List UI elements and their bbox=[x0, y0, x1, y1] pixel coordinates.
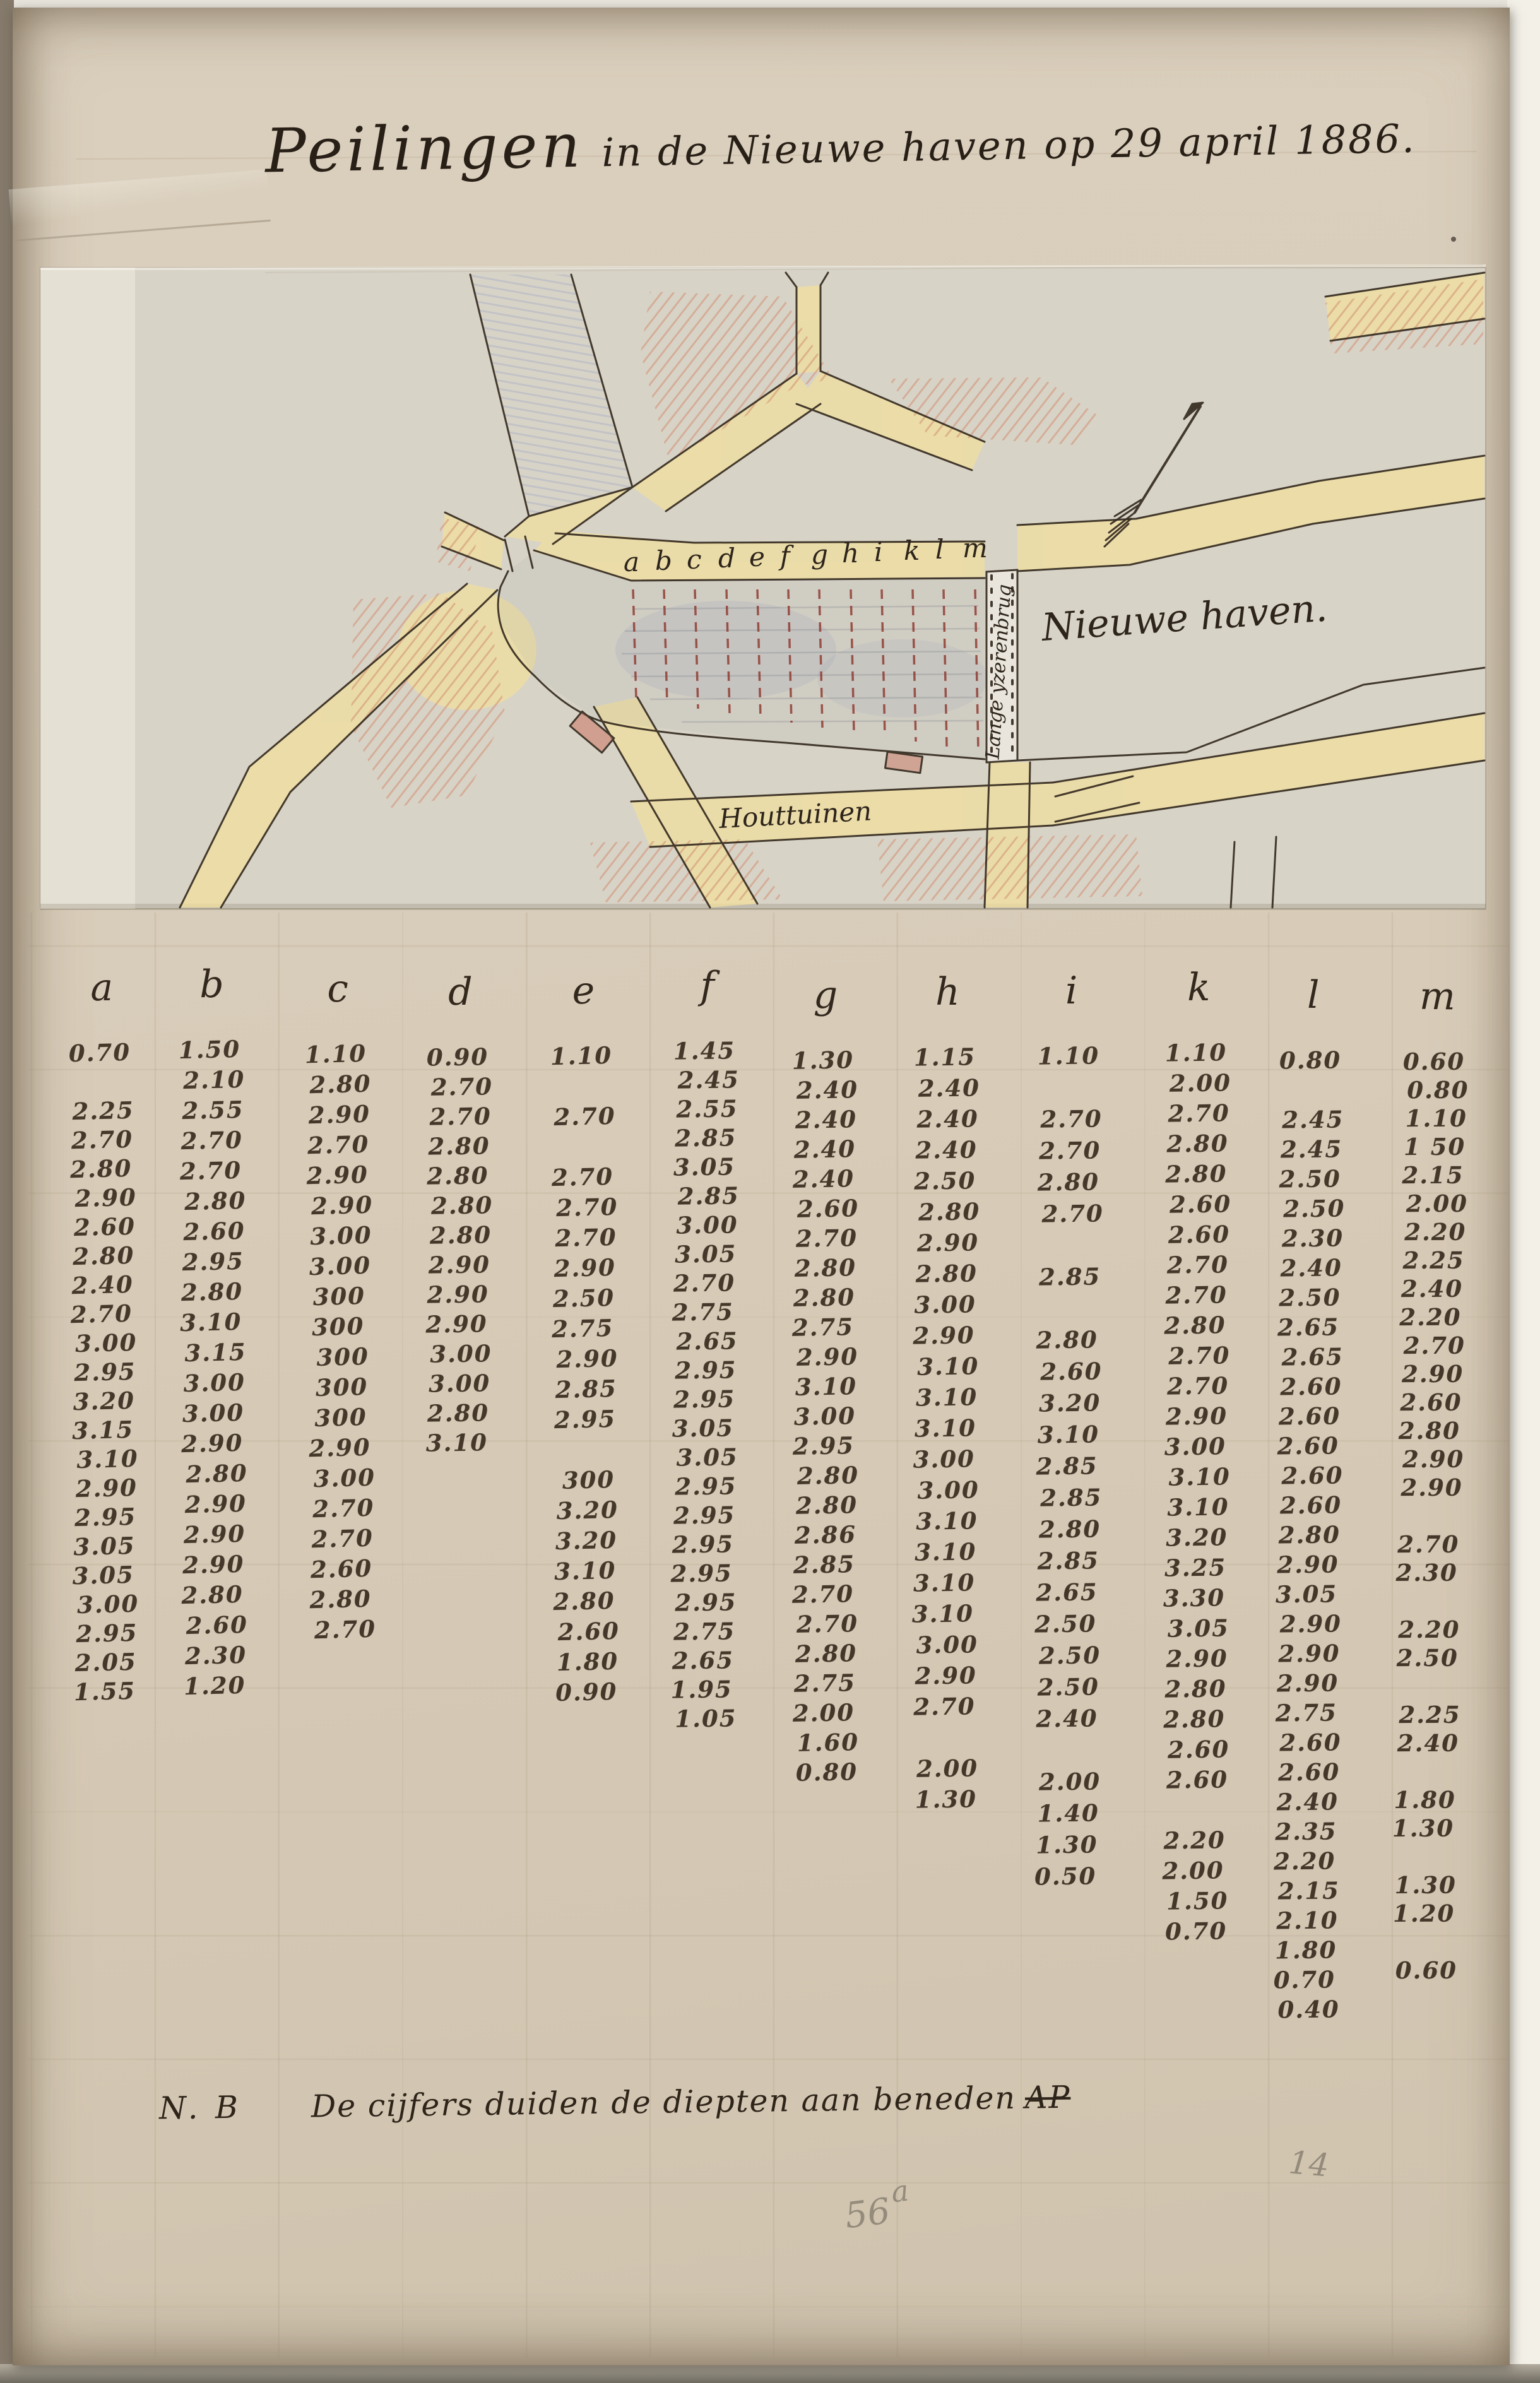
depth-value: 2.60 bbox=[281, 1553, 402, 1585]
depth-value: 3.00 bbox=[280, 1250, 400, 1282]
depth-value: 3.00 bbox=[888, 1475, 1009, 1506]
depth-value: 2.95 bbox=[45, 1356, 165, 1388]
depth-value: 2.90 bbox=[152, 1428, 273, 1459]
depth-value: 2.90 bbox=[1137, 1643, 1257, 1674]
depth-value: 2.60 bbox=[1248, 1431, 1368, 1461]
depth-value: 1.80 bbox=[1246, 1935, 1366, 1965]
column-values: 1.102.802.902.702.902.903.003.0030030030… bbox=[278, 1053, 398, 1055]
depth-value: 2.00 bbox=[1377, 1189, 1497, 1219]
column-header: a bbox=[42, 965, 162, 1010]
depth-value: 1.80 bbox=[528, 1646, 648, 1677]
column-values: 0.600.801.101 502.152.002.202.252.402.20… bbox=[1377, 1061, 1496, 1063]
depth-value: 2.95 bbox=[646, 1471, 766, 1501]
depth-value: 0.70 bbox=[1136, 1916, 1257, 1947]
sounding-column-h: h1.152.402.402.402.502.802.902.803.002.9… bbox=[887, 1057, 1007, 1058]
depth-value: 2.60 bbox=[1139, 1734, 1259, 1765]
depth-value: 3.00 bbox=[153, 1397, 274, 1429]
depth-value: 0.90 bbox=[526, 1676, 647, 1708]
depth-value: 2.60 bbox=[1250, 1401, 1370, 1431]
column-values: 1.102.702.702.702.702.902.502.752.902.85… bbox=[524, 1056, 644, 1056]
title-rest: in de Nieuwe haven op 29 april 1886. bbox=[601, 115, 1417, 176]
depth-value: 2.45 bbox=[648, 1065, 769, 1095]
depth-value: 1.10 bbox=[521, 1040, 642, 1072]
depth-value: 0.70 bbox=[1245, 1965, 1365, 1995]
depth-value: 3.00 bbox=[1135, 1431, 1256, 1462]
depth-value: 2.90 bbox=[527, 1343, 648, 1375]
depth-value: 2.80 bbox=[44, 1240, 164, 1272]
sounding-column-d: d0.902.702.702.802.802.802.802.902.902.9… bbox=[400, 1057, 520, 1058]
depth-value: 2.40 bbox=[1372, 1274, 1492, 1304]
depth-value: 1.30 bbox=[886, 1784, 1007, 1815]
depth-value: 3.30 bbox=[1134, 1583, 1255, 1614]
depth-value: 3.00 bbox=[48, 1588, 169, 1621]
depth-value: 2.40 bbox=[764, 1163, 884, 1194]
depth-value: 2.55 bbox=[647, 1094, 767, 1124]
depth-value: 2.40 bbox=[1248, 1787, 1368, 1817]
depth-value: 2.80 bbox=[768, 1460, 889, 1491]
depth-value: 2.85 bbox=[526, 1373, 646, 1405]
depth-value: 2.80 bbox=[1370, 1416, 1490, 1446]
depth-value: 2.50 bbox=[885, 1166, 1005, 1197]
depth-value: 3.00 bbox=[885, 1289, 1005, 1320]
depth-value: 2.45 bbox=[1252, 1134, 1371, 1164]
depth-value: 2.90 bbox=[1251, 1609, 1371, 1639]
depth-value: 2.40 bbox=[887, 1104, 1008, 1135]
depth-value: 2.90 bbox=[888, 1227, 1009, 1258]
depth-value: 2.70 bbox=[526, 1222, 646, 1253]
depth-value: 2.80 bbox=[157, 1458, 277, 1489]
depth-value: 2.75 bbox=[523, 1313, 643, 1344]
depth-value: 2.60 bbox=[1250, 1727, 1370, 1758]
depth-value: 3.20 bbox=[1137, 1522, 1257, 1553]
depth-value: 2.90 bbox=[45, 1182, 166, 1214]
depth-value: 2.80 bbox=[1250, 1520, 1370, 1550]
depth-value: 3.10 bbox=[885, 1413, 1006, 1444]
column-header: b bbox=[151, 962, 271, 1007]
depth-value: 1.55 bbox=[45, 1676, 165, 1708]
depth-value: 2.70 bbox=[767, 1222, 887, 1253]
depth-value: 2.80 bbox=[155, 1185, 276, 1217]
depth-value: 1.80 bbox=[1365, 1785, 1485, 1815]
depth-value: 2.80 bbox=[1009, 1167, 1129, 1197]
depth-value: 1.10 bbox=[1136, 1038, 1257, 1068]
depth-value: 3.00 bbox=[765, 1400, 885, 1431]
depth-value: 2.60 bbox=[1371, 1388, 1491, 1417]
depth-value: 2.90 bbox=[277, 1159, 398, 1191]
depth-value: 2.55 bbox=[153, 1094, 273, 1126]
depth-value: 2.00 bbox=[1133, 1855, 1253, 1886]
sounding-column-f: f1.452.452.552.853.052.853.003.052.702.7… bbox=[647, 1051, 767, 1051]
column-header: i bbox=[1011, 969, 1131, 1014]
column-header: m bbox=[1377, 974, 1498, 1020]
depth-value: 300 bbox=[283, 1340, 403, 1373]
depth-value: 2.30 bbox=[1367, 1558, 1487, 1588]
depth-value: 300 bbox=[280, 1402, 401, 1434]
depth-value: 3.00 bbox=[281, 1219, 401, 1251]
depth-value: 1.60 bbox=[768, 1727, 889, 1758]
depth-value: 2.90 bbox=[398, 1279, 518, 1310]
depth-value: 2.50 bbox=[1005, 1609, 1126, 1639]
depth-value: 3.10 bbox=[151, 1306, 271, 1338]
depth-value: 2.80 bbox=[401, 1220, 521, 1251]
depth-value: 1.50 bbox=[150, 1034, 270, 1065]
depth-value: 1.40 bbox=[1008, 1798, 1128, 1828]
depth-value: 2.90 bbox=[400, 1250, 520, 1280]
depth-value: 2.75 bbox=[643, 1297, 764, 1327]
depth-value: 2.80 bbox=[41, 1153, 162, 1185]
depth-value: 2.85 bbox=[1010, 1262, 1130, 1292]
depth-value: 3.25 bbox=[1135, 1552, 1256, 1583]
depth-value: 3.00 bbox=[400, 1368, 520, 1399]
depth-value: 2.80 bbox=[767, 1489, 887, 1520]
column-values: 1.152.402.402.402.502.802.902.803.002.90… bbox=[887, 1057, 1007, 1058]
depth-value: 2.50 bbox=[1250, 1282, 1370, 1313]
column-values: 1.502.102.552.702.702.802.602.952.803.10… bbox=[152, 1050, 272, 1050]
depth-value: 3.20 bbox=[527, 1494, 648, 1526]
depth-value: 1.10 bbox=[1377, 1104, 1496, 1133]
depth-value: 1.45 bbox=[644, 1036, 765, 1066]
depth-value: 2.70 bbox=[1136, 1280, 1257, 1311]
depth-value: 300 bbox=[279, 1280, 400, 1313]
depth-value: 2.50 bbox=[524, 1282, 644, 1314]
depth-value: 2.70 bbox=[1011, 1104, 1132, 1134]
depth-value: 2.20 bbox=[1370, 1303, 1490, 1332]
depth-value: 2.70 bbox=[285, 1613, 405, 1645]
depth-value: 3.10 bbox=[1009, 1419, 1129, 1450]
depth-value: 2.70 bbox=[400, 1101, 521, 1132]
depth-value: 2.60 bbox=[1251, 1490, 1371, 1520]
depth-value: 2.40 bbox=[1007, 1703, 1127, 1734]
depth-value: 2.90 bbox=[524, 1252, 645, 1284]
depth-value: 2.60 bbox=[1251, 1371, 1371, 1402]
depth-value: 3.05 bbox=[646, 1239, 766, 1269]
depth-value: 2.00 bbox=[887, 1753, 1008, 1784]
depth-value: 300 bbox=[528, 1464, 649, 1496]
depth-value: 2.95 bbox=[644, 1500, 765, 1530]
depth-value: 2.70 bbox=[1375, 1331, 1495, 1361]
depth-value: 2.60 bbox=[44, 1211, 165, 1243]
depth-value: 2.95 bbox=[641, 1558, 762, 1588]
depth-value: 3.00 bbox=[647, 1210, 767, 1240]
depth-value: 2.70 bbox=[1139, 1340, 1260, 1371]
depth-value: 2.40 bbox=[766, 1104, 887, 1135]
depth-value: 0.80 bbox=[1250, 1045, 1370, 1075]
depth-value: 2.70 bbox=[523, 1161, 643, 1193]
depth-value: 1.10 bbox=[275, 1038, 396, 1070]
depth-value: 2.25 bbox=[43, 1095, 163, 1127]
depth-value: 2.25 bbox=[1370, 1700, 1490, 1730]
depth-value: 2.50 bbox=[1010, 1640, 1130, 1670]
depth-value: 2.90 bbox=[1248, 1549, 1368, 1580]
depth-value: 2.90 bbox=[396, 1309, 517, 1340]
depth-value: 2.40 bbox=[1368, 1729, 1488, 1758]
depth-value: 3.10 bbox=[397, 1428, 518, 1458]
page-number: 14 bbox=[1288, 2144, 1330, 2184]
column-header: f bbox=[647, 964, 767, 1008]
depth-value: 2.90 bbox=[1371, 1473, 1491, 1503]
depth-value: 2.90 bbox=[46, 1472, 167, 1505]
depth-value: 3.20 bbox=[1010, 1388, 1130, 1418]
depth-value: 1.30 bbox=[1363, 1813, 1483, 1843]
depth-value: 3.05 bbox=[647, 1442, 767, 1472]
depth-value: 0.40 bbox=[1248, 1994, 1368, 2025]
depth-value: 2.75 bbox=[644, 1616, 765, 1647]
depth-value: 3.05 bbox=[1139, 1613, 1259, 1644]
depth-value: 2.00 bbox=[764, 1697, 884, 1728]
depth-value: 2.70 bbox=[278, 1129, 399, 1161]
inventory-digits: 56 bbox=[843, 2191, 892, 2237]
depth-value: 2.40 bbox=[889, 1073, 1010, 1104]
depth-value: 2.90 bbox=[885, 1660, 1006, 1691]
nb-prefix: N. B bbox=[159, 2090, 242, 2127]
depth-value: 2.00 bbox=[1010, 1766, 1130, 1797]
column-values: 0.802.452.452.502.502.302.402.502.652.65… bbox=[1253, 1060, 1373, 1060]
sounding-column-b: b1.502.102.552.702.702.802.602.952.803.1… bbox=[152, 1050, 272, 1050]
depth-value: 2.95 bbox=[764, 1430, 884, 1461]
depth-value: 2.30 bbox=[156, 1640, 276, 1671]
scanned-document: a b c d e f g h i k l m Nieuwe haven. La… bbox=[0, 0, 1540, 2383]
depth-value: 3.00 bbox=[154, 1367, 275, 1398]
depth-value: 3.00 bbox=[46, 1327, 167, 1359]
depth-value: 2.95 bbox=[45, 1501, 166, 1534]
depth-value: 1.20 bbox=[155, 1670, 275, 1701]
depth-value: 2.40 bbox=[42, 1269, 163, 1301]
depth-value: 2.65 bbox=[647, 1326, 767, 1356]
photo-backdrop-left bbox=[0, 0, 14, 2383]
depth-value: 2.95 bbox=[525, 1404, 646, 1435]
depth-value: 3.05 bbox=[643, 1413, 764, 1443]
depth-value: 2.90 bbox=[884, 1320, 1004, 1351]
depth-value: 2.80 bbox=[398, 1398, 519, 1429]
depth-value: 1.15 bbox=[885, 1042, 1005, 1073]
depth-value: 2.80 bbox=[398, 1161, 518, 1191]
depth-value: 2.80 bbox=[1136, 1159, 1257, 1190]
depth-value: 1.50 bbox=[1137, 1886, 1258, 1917]
depth-value: 1.05 bbox=[646, 1703, 766, 1734]
depth-value: 1.30 bbox=[1007, 1830, 1127, 1860]
depth-value: 0.70 bbox=[39, 1037, 160, 1069]
depth-value: 0.80 bbox=[1378, 1075, 1498, 1105]
column-header: k bbox=[1139, 966, 1259, 1010]
depth-value: 2.40 bbox=[886, 1135, 1007, 1166]
depth-value: 1.95 bbox=[641, 1674, 762, 1705]
title-word-main: Peilingen bbox=[264, 110, 584, 187]
depth-value: 2.20 bbox=[1369, 1615, 1489, 1645]
column-header: g bbox=[766, 973, 885, 1017]
depth-value: 2.90 bbox=[282, 1189, 403, 1221]
depth-value: 2.40 bbox=[767, 1074, 888, 1105]
depth-value: 3.20 bbox=[526, 1525, 647, 1556]
depth-value: 3.10 bbox=[888, 1351, 1009, 1382]
depth-value: 2.70 bbox=[42, 1124, 162, 1156]
depth-value: 2.10 bbox=[154, 1064, 275, 1096]
depth-value: 2.75 bbox=[763, 1311, 884, 1342]
depth-value: 2.90 bbox=[1373, 1445, 1493, 1474]
depth-value: 2.60 bbox=[1137, 1765, 1258, 1795]
depth-value: 2.05 bbox=[45, 1647, 166, 1679]
column-values: 0.702.252.702.802.902.602.802.402.703.00… bbox=[42, 1052, 162, 1053]
sounding-column-m: m0.600.801.101 502.152.002.202.252.402.2… bbox=[1377, 1061, 1496, 1063]
depth-value: 2.95 bbox=[646, 1587, 766, 1617]
sounding-column-k: k1.102.002.702.802.802.602.602.702.702.8… bbox=[1139, 1053, 1259, 1053]
depth-value: 3.15 bbox=[43, 1414, 163, 1446]
depth-value: 3.10 bbox=[1138, 1492, 1259, 1523]
depth-value: 3.10 bbox=[887, 1382, 1007, 1413]
depth-value: 2.80 bbox=[524, 1585, 644, 1617]
depth-value: 3.10 bbox=[525, 1555, 646, 1587]
depth-value: 2.70 bbox=[402, 1072, 523, 1103]
depth-value: 2.25 bbox=[1374, 1246, 1494, 1275]
depth-value: 2.95 bbox=[153, 1246, 273, 1277]
depth-value: 2.70 bbox=[763, 1578, 884, 1609]
depth-value: 2.35 bbox=[1246, 1816, 1366, 1847]
depth-value: 2.70 bbox=[767, 1608, 888, 1639]
depth-value: 3.00 bbox=[401, 1339, 521, 1369]
depth-value: 2.95 bbox=[646, 1355, 766, 1385]
column-header: c bbox=[278, 966, 398, 1012]
depth-value: 2.90 bbox=[1137, 1401, 1257, 1432]
depth-value: 2.15 bbox=[1249, 1876, 1369, 1906]
sounding-column-i: i1.102.702.702.802.702.852.802.603.203.1… bbox=[1011, 1056, 1131, 1056]
depth-value: 2.80 bbox=[764, 1282, 885, 1313]
depth-value: 2.95 bbox=[644, 1384, 765, 1414]
depth-value: 2.80 bbox=[280, 1583, 401, 1616]
depth-value: 0.60 bbox=[1366, 1956, 1486, 1985]
column-values: 1.102.702.702.802.702.852.802.603.203.10… bbox=[1011, 1056, 1131, 1056]
column-header: e bbox=[523, 969, 643, 1014]
depth-value: 2.70 bbox=[527, 1191, 648, 1223]
sounding-column-e: e1.102.702.702.702.702.902.502.752.902.8… bbox=[524, 1056, 644, 1056]
depth-value: 2.40 bbox=[1251, 1253, 1371, 1283]
depth-value: 2.95 bbox=[47, 1617, 167, 1650]
depth-value: 2.90 bbox=[1248, 1668, 1368, 1698]
depth-value: 1.30 bbox=[1366, 1871, 1486, 1900]
depth-value: 3.20 bbox=[44, 1385, 164, 1417]
depth-value: 2.75 bbox=[765, 1667, 885, 1698]
sounding-column-l: l0.802.452.452.502.502.302.402.502.652.6… bbox=[1253, 1060, 1373, 1060]
depth-value: 2.90 bbox=[767, 1341, 888, 1372]
depth-value: 2.60 bbox=[1139, 1219, 1260, 1250]
inventory-number: 56a bbox=[842, 2181, 909, 2237]
depth-value: 2.60 bbox=[1249, 1757, 1369, 1787]
depth-value: 2.80 bbox=[152, 1276, 273, 1308]
depth-value: 1.30 bbox=[763, 1044, 884, 1075]
depth-value: 2.80 bbox=[402, 1190, 523, 1221]
depth-value: 2.90 bbox=[280, 1432, 400, 1464]
depth-value: 2.70 bbox=[1010, 1135, 1130, 1166]
depth-value: 3.00 bbox=[884, 1444, 1004, 1475]
column-header: h bbox=[887, 970, 1007, 1015]
depth-value: 2.50 bbox=[1368, 1643, 1488, 1673]
column-values: 0.902.702.702.802.802.802.802.902.902.90… bbox=[400, 1057, 520, 1058]
depth-value: 2.60 bbox=[768, 1193, 889, 1224]
depth-value: 300 bbox=[281, 1371, 402, 1403]
depth-value: 2.90 bbox=[1373, 1359, 1493, 1389]
sounding-column-c: c1.102.802.902.702.902.903.003.003003003… bbox=[278, 1053, 398, 1055]
depth-value: 2.80 bbox=[399, 1131, 519, 1162]
depth-value: 3.10 bbox=[885, 1537, 1006, 1568]
depth-value: 2.80 bbox=[1010, 1514, 1130, 1544]
depth-value: 2.75 bbox=[1247, 1698, 1366, 1728]
depth-value: 2.80 bbox=[766, 1252, 886, 1283]
depth-value: 300 bbox=[278, 1311, 398, 1343]
column-values: 1.452.452.552.853.052.853.003.052.702.75… bbox=[647, 1051, 767, 1051]
depth-value: 2.90 bbox=[155, 1488, 276, 1520]
depth-value: 1 50 bbox=[1375, 1132, 1495, 1162]
depth-value: 2.85 bbox=[1011, 1482, 1132, 1513]
depth-value: 3.00 bbox=[284, 1462, 405, 1494]
depth-value: 2.85 bbox=[649, 1181, 769, 1211]
depth-value: 3.05 bbox=[644, 1152, 765, 1182]
depth-value: 2.70 bbox=[644, 1268, 765, 1298]
depth-value: 2.80 bbox=[152, 1579, 273, 1611]
depth-value: 2.65 bbox=[643, 1645, 764, 1676]
depth-value: 2.90 bbox=[279, 1099, 400, 1131]
depth-value: 2.70 bbox=[1138, 1250, 1259, 1280]
depth-value: 3.10 bbox=[1139, 1462, 1260, 1493]
depth-value: 2.80 bbox=[1137, 1128, 1258, 1159]
depth-value: 2.60 bbox=[157, 1609, 277, 1641]
depth-value: 2.45 bbox=[1253, 1104, 1373, 1135]
depth-value: 2.65 bbox=[1252, 1342, 1372, 1372]
depth-value: 3.05 bbox=[1247, 1579, 1366, 1609]
depth-value: 0.90 bbox=[398, 1042, 518, 1073]
depth-value: 2.50 bbox=[1250, 1164, 1370, 1194]
depth-value: 2.80 bbox=[886, 1258, 1007, 1289]
depth-value: 2.15 bbox=[1373, 1161, 1493, 1190]
depth-value: 2.85 bbox=[646, 1123, 766, 1153]
depth-value: 2.80 bbox=[1135, 1310, 1255, 1341]
depth-value: 0.50 bbox=[1005, 1861, 1126, 1891]
depth-value: 2.20 bbox=[1134, 1825, 1255, 1856]
column-header: l bbox=[1253, 973, 1373, 1017]
depth-value: 2.20 bbox=[1375, 1217, 1495, 1247]
depth-value: 2.70 bbox=[1368, 1530, 1488, 1559]
depth-value: 2.60 bbox=[1140, 1189, 1261, 1220]
depth-value: 2.20 bbox=[1245, 1846, 1365, 1876]
depth-value: 2.70 bbox=[151, 1125, 272, 1156]
datum-symbol: AP bbox=[1025, 2079, 1071, 2116]
depth-value: 0.60 bbox=[1374, 1047, 1494, 1077]
depth-value: 2.50 bbox=[1008, 1672, 1128, 1702]
depth-value: 2.80 bbox=[1135, 1674, 1256, 1705]
depth-value: 2.70 bbox=[151, 1155, 271, 1186]
depth-value: 2.86 bbox=[766, 1519, 886, 1550]
depth-value: 2.80 bbox=[766, 1638, 887, 1669]
depth-value: 2.60 bbox=[528, 1616, 649, 1647]
depth-value: 3.00 bbox=[887, 1629, 1007, 1660]
depth-value: 3.10 bbox=[884, 1568, 1005, 1599]
photo-backdrop-bottom bbox=[0, 2364, 1540, 2383]
depth-value: 2.80 bbox=[1134, 1704, 1255, 1735]
depth-value: 2.85 bbox=[764, 1549, 885, 1580]
depth-value: 2.40 bbox=[765, 1133, 885, 1164]
depth-value: 2.70 bbox=[1139, 1098, 1259, 1129]
depth-value: 2.80 bbox=[280, 1068, 401, 1100]
depth-value: 3.10 bbox=[883, 1599, 1004, 1629]
depth-value: 2.10 bbox=[1247, 1905, 1367, 1936]
depth-value: 2.80 bbox=[1007, 1325, 1127, 1355]
depth-value: 1.20 bbox=[1364, 1899, 1484, 1929]
depth-value: 2.70 bbox=[283, 1492, 404, 1524]
depth-value: 2.70 bbox=[884, 1691, 1005, 1722]
depth-value: 2.65 bbox=[1007, 1577, 1127, 1607]
depth-value: 2.90 bbox=[153, 1549, 274, 1580]
photo-backdrop-right bbox=[1507, 0, 1540, 2383]
depth-value: 2.60 bbox=[1011, 1356, 1132, 1387]
column-values: 1.102.002.702.802.802.602.602.702.702.80… bbox=[1139, 1053, 1259, 1053]
depth-value: 3.05 bbox=[43, 1559, 163, 1592]
